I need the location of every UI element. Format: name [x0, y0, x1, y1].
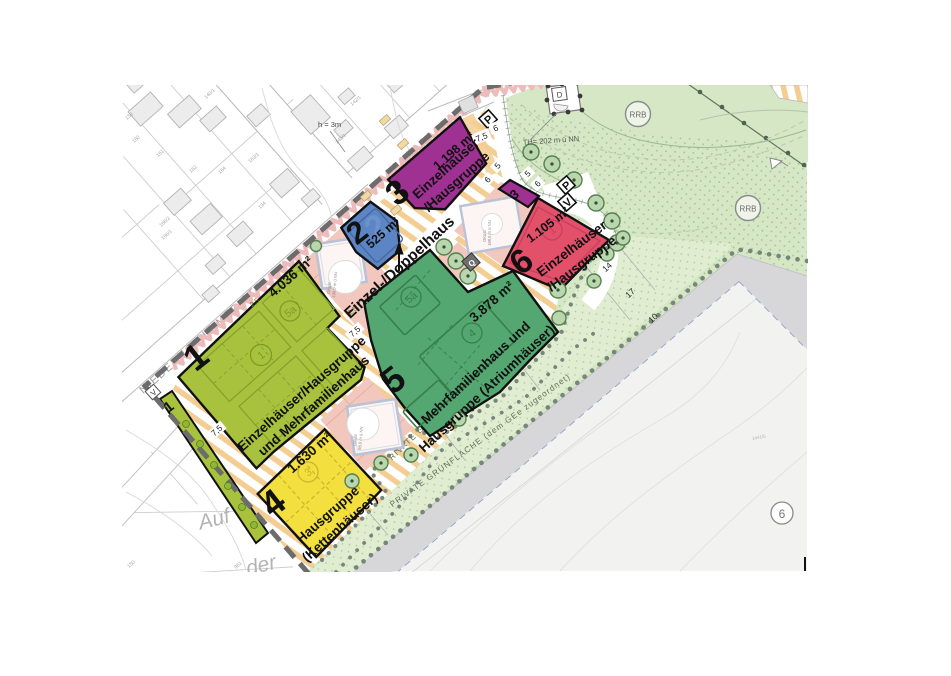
svg-text:RRB: RRB	[630, 111, 647, 120]
svg-text:199,0 m ü NN: 199,0 m ü NN	[487, 220, 492, 246]
svg-text:6: 6	[779, 507, 786, 521]
svg-text:h = 3m: h = 3m	[318, 120, 341, 129]
svg-text:RRB: RRB	[740, 205, 757, 214]
